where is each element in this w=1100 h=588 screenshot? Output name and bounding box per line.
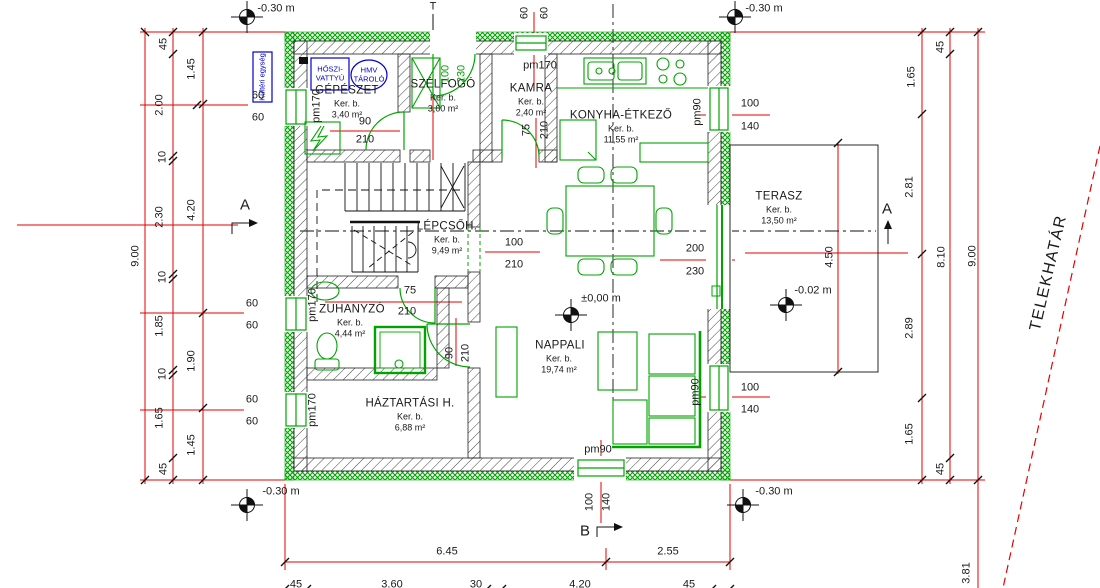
dim-entrance-w: 100 (441, 65, 452, 83)
dimension-ticks (141, 28, 982, 588)
dim-left-230: 2.30 (155, 206, 166, 227)
dim-left-win1-b: 60 (252, 113, 264, 124)
dim-terrace-depth: 4.50 (825, 246, 836, 267)
dim-left-45a: 45 (159, 38, 170, 50)
room-type-kamra: Ker. b. (518, 98, 544, 107)
level-main: ±0,00 m (581, 294, 621, 305)
dim-bottom-255: 2.55 (657, 547, 678, 558)
room-name-konyha: KONYHA-ÉTKEZŐ (570, 110, 672, 122)
level-bottom-left: -0.30 m (262, 487, 299, 498)
dim-left-win2-b: 60 (246, 321, 258, 332)
dim-right-45a: 45 (936, 41, 947, 53)
dim-left-165: 1.65 (155, 407, 166, 428)
dim-left-total: 9.00 (131, 245, 142, 266)
dim-left-145a: 1.45 (187, 58, 198, 79)
dim-right-281: 2.81 (905, 176, 916, 197)
level-marker-bottom-left (231, 489, 263, 521)
dim-kamra-door-h: 210 (540, 121, 551, 139)
telekhatar-line (1003, 146, 1100, 588)
dim-left-190: 1.90 (187, 350, 198, 371)
room-area-haztartasi: 6,88 m² (395, 424, 426, 433)
pm-konyha: pm90 (693, 98, 704, 126)
room-name-terasz: TERASZ (755, 191, 802, 203)
pm-nappali-south: pm90 (584, 445, 612, 456)
dim-konyha-window-h: 140 (741, 122, 759, 133)
dim-left-145b: 1.45 (187, 434, 198, 455)
room-name-kamra: KAMRA (510, 83, 552, 95)
room-type-gepeszet: Ker. b. (334, 100, 360, 109)
dim-left-win1-a: 60 (252, 91, 264, 102)
dim-right-289: 2.89 (905, 317, 916, 338)
dim-zuhanyzo-door-w: 75 (404, 286, 416, 297)
pm-zuhanyzo: pm170 (308, 288, 319, 322)
room-type-zuhanyzo: Ker. b. (337, 319, 363, 328)
dim-konyha-window-w: 100 (741, 99, 759, 110)
dim-south-window-w: 100 (585, 493, 596, 511)
floor-plan-page: GÉPÉSZET Ker. b. 3,40 m² SZÉLFOGÓ Ker. b… (0, 0, 1100, 588)
room-area-konyha: 11,55 m² (604, 136, 639, 145)
section-a-right: A (882, 202, 892, 217)
dim-bottom-645: 6.45 (436, 547, 457, 558)
room-type-lepcsohaz: Ker. b. (434, 236, 460, 245)
dim-terrace-door-h: 230 (686, 267, 704, 278)
dim-nappali-window-w: 100 (741, 383, 759, 394)
section-b: B (580, 524, 590, 539)
dim-top-window-a: 60 (520, 7, 531, 19)
pm-haztartasi: pm170 (308, 393, 319, 427)
hmv-tank-label-1: HMV (361, 66, 378, 74)
dim-left-10c: 10 (158, 368, 169, 380)
dim-left-10a: 10 (158, 151, 169, 163)
room-type-konyha: Ker. b. (608, 125, 634, 134)
dim-right-165b: 1.65 (905, 423, 916, 444)
dim-haztartasi-door-h: 210 (461, 344, 472, 362)
dim-bottom-45b: 45 (683, 580, 695, 588)
marker-t: T (430, 2, 437, 13)
room-type-haztartasi: Ker. b. (397, 413, 423, 422)
pm-nappali: pm90 (691, 378, 702, 406)
dim-right-total: 9.00 (968, 245, 979, 266)
dim-gepeszet-door-h: 210 (356, 135, 374, 146)
terrace-outline (730, 145, 878, 372)
level-marker-bottom-right (727, 489, 759, 521)
dim-gepeszet-door-w: 90 (359, 117, 371, 128)
dim-nappali-window-h: 140 (741, 405, 759, 416)
sofa (612, 331, 700, 447)
dim-left-45b: 45 (159, 463, 170, 475)
dim-entrance-h: 230 (457, 65, 468, 83)
dim-left-win3-a: 60 (246, 395, 258, 406)
dim-bottom-30: 30 (470, 580, 482, 588)
dim-left-win3-b: 60 (246, 417, 258, 428)
room-type-nappali: Ker. b. (546, 355, 572, 364)
dim-hall-door-h: 210 (505, 260, 523, 271)
dim-south-window-h: 140 (602, 493, 613, 511)
room-name-zuhanyzo: ZUHANYZÓ (319, 304, 385, 316)
room-area-kamra: 2,40 m² (516, 109, 547, 118)
pm-gepeszet: pm170 (312, 89, 323, 123)
dim-bottom-360: 3.60 (381, 580, 402, 588)
level-bottom-right: -0.30 m (755, 487, 792, 498)
dim-left-win2-a: 60 (246, 299, 258, 310)
room-name-nappali: NAPPALI (535, 340, 585, 352)
dim-right-165a: 1.65 (907, 66, 918, 87)
dim-left-185: 1.85 (155, 315, 166, 336)
heat-pump-label-1: HŐSZI- (317, 65, 342, 73)
dim-right-45b: 45 (936, 463, 947, 475)
dim-left-200: 2.00 (155, 94, 166, 115)
level-top-right: -0.30 m (745, 4, 782, 15)
dim-haztartasi-door-w: 90 (445, 347, 456, 359)
dim-right-810: 8.10 (937, 246, 948, 267)
room-name-lepcsohaz: LÉPCSŐH. (417, 221, 478, 233)
room-area-nappali: 19,74 m² (541, 366, 577, 375)
hmv-tank-label-2: TÁROLÓ (354, 75, 385, 83)
room-name-haztartasi: HÁZTARTÁSI H. (365, 398, 454, 410)
room-area-terasz: 13,50 m² (761, 217, 797, 226)
pm-kamra: pm170 (523, 61, 557, 72)
level-terrace: -0.02 m (794, 286, 831, 297)
dim-zuhanyzo-door-h: 210 (398, 307, 416, 318)
dining-table (547, 167, 672, 275)
room-area-zuhanyzo: 4,44 m² (335, 330, 366, 339)
dim-right-381: 3.81 (962, 562, 973, 583)
level-top-left: -0.30 m (257, 4, 294, 15)
dim-left-420: 4.20 (187, 199, 198, 220)
dim-bottom-45a: 45 (290, 580, 302, 588)
section-a-left: A (240, 198, 250, 213)
dim-kamra-door-w: 75 (522, 124, 533, 136)
dim-bottom-420: 4.20 (569, 580, 590, 588)
room-area-gepeszet: 3,40 m² (332, 111, 363, 120)
room-type-szelfogo: Ker. b. (430, 94, 456, 103)
heat-pump-label-2: VATTYÚ (316, 74, 344, 82)
room-area-szelfogo: 3,60 m² (428, 105, 459, 114)
dim-terrace-door-w: 200 (686, 244, 704, 255)
dim-hall-door-w: 100 (505, 238, 523, 249)
room-type-terasz: Ker. b. (766, 206, 792, 215)
room-name-gepeszet: GÉPÉSZET (315, 85, 379, 97)
dim-left-10b: 10 (158, 271, 169, 283)
dim-top-window-b: 60 (540, 7, 551, 19)
room-area-lepcsohaz: 9,49 m² (432, 247, 463, 256)
